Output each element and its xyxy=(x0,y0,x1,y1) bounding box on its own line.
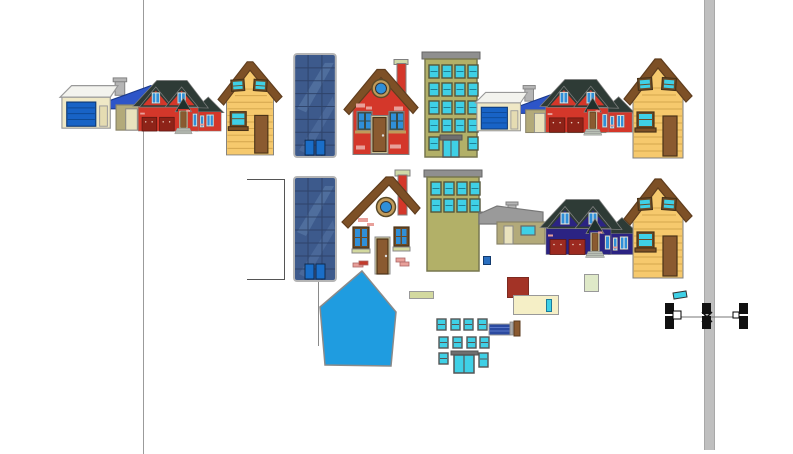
two-gable-house-navy[interactable] xyxy=(538,186,638,262)
yellow-house-3[interactable] xyxy=(624,172,692,280)
detached-window-grid[interactable] xyxy=(436,318,492,374)
cyan-fragment[interactable] xyxy=(672,291,687,299)
olive-building-1[interactable] xyxy=(422,52,480,158)
exploded-window-left[interactable] xyxy=(352,226,370,254)
two-gable-house-red-2[interactable] xyxy=(538,66,634,140)
handle-bottom-right xyxy=(739,316,748,329)
sill-strip[interactable] xyxy=(409,291,434,299)
drawing-canvas[interactable] xyxy=(0,0,793,454)
node-left xyxy=(673,311,681,319)
skyscraper-2[interactable] xyxy=(293,176,337,282)
handle-top-right xyxy=(739,303,748,314)
pentagon-house-body[interactable] xyxy=(317,269,399,368)
exploded-window-right[interactable] xyxy=(393,226,410,252)
skyscraper-1[interactable] xyxy=(293,53,337,158)
brick-piece[interactable] xyxy=(396,258,410,267)
round-window-cottage[interactable] xyxy=(342,57,420,158)
exploded-roof[interactable] xyxy=(341,168,421,230)
small-blue-square[interactable] xyxy=(483,256,491,265)
two-gable-house-red-1[interactable] xyxy=(131,66,223,140)
node-right xyxy=(733,312,739,318)
cream-rectangle[interactable] xyxy=(513,295,559,315)
yellow-house-1[interactable] xyxy=(218,52,282,160)
selection-handles[interactable] xyxy=(660,301,750,331)
cyan-stripe xyxy=(546,299,552,312)
brown-chimney-piece[interactable] xyxy=(510,321,521,336)
pale-green-rectangle[interactable] xyxy=(584,274,599,292)
blue-striped-piece[interactable] xyxy=(489,324,510,335)
yellow-house-2[interactable] xyxy=(624,52,692,160)
long-roof xyxy=(479,206,543,224)
gray-vertical-bar[interactable] xyxy=(704,0,715,450)
open-rectangle-outline[interactable] xyxy=(247,179,285,280)
